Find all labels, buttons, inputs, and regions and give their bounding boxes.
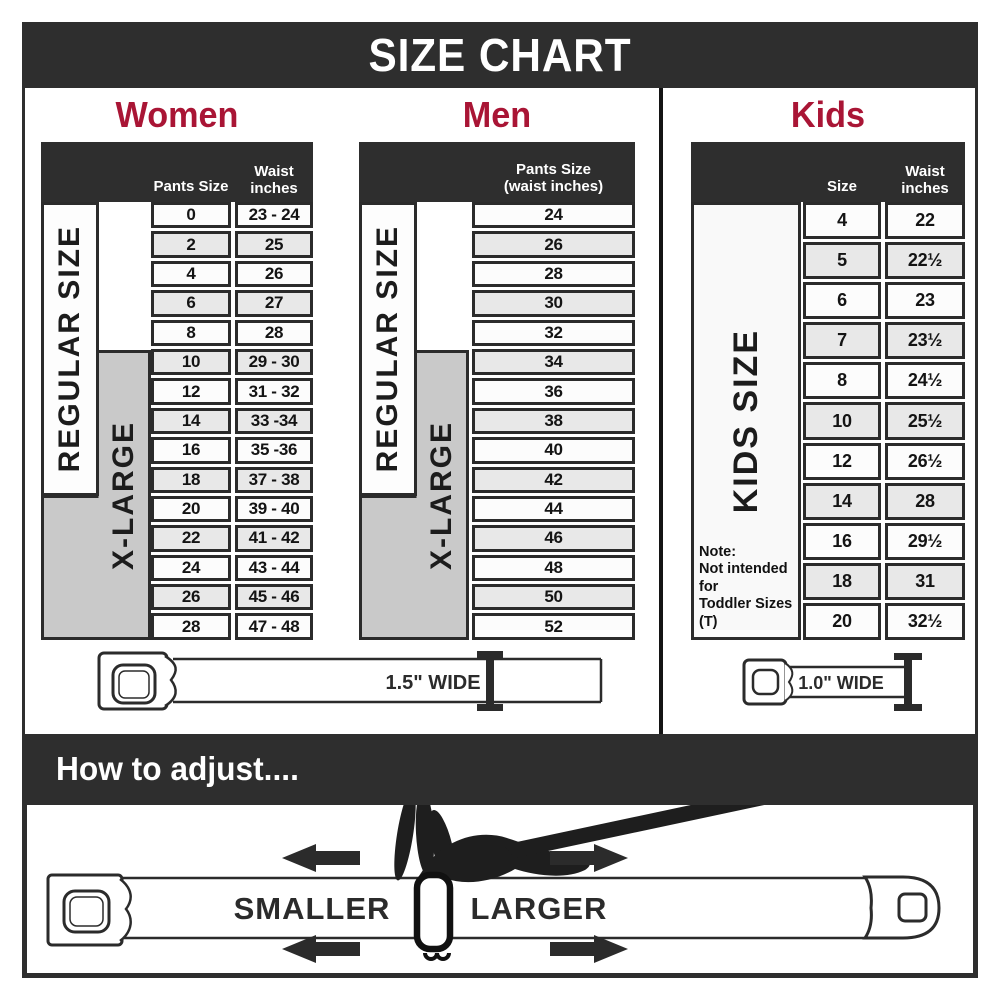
kids-col1-header: Size [803,178,881,195]
kids-size-label: KIDS SIZE [727,329,766,513]
women-col1-header: Pants Size [151,178,231,195]
kids-waist-column: 2222½2323½24½25½26½2829½3132½ [885,202,965,640]
how-to-adjust-heading: How to adjust.... [56,750,299,788]
men-pants-size-cell: 44 [472,496,635,522]
men-col-header: Pants Size (waist inches) [472,161,635,195]
women-heading: Women [48,94,306,136]
women-waist-cell: 41 - 42 [235,525,313,551]
title-bar: SIZE CHART [22,22,978,88]
pulled-strap [503,805,971,858]
men-pants-size-column: 242628303234363840424446485052 [472,202,635,640]
kids-waist-cell: 22 [885,202,965,239]
adult-belt-illustration: 1.5" WIDE [41,646,641,731]
buckle-opening [753,670,778,694]
kids-size-block: KIDS SIZE Note: Not intended for Toddler… [691,202,801,640]
women-waist-cell: 31 - 32 [235,378,313,404]
kids-waist-cell: 32½ [885,603,965,640]
how-to-adjust-bar: How to adjust.... [22,737,978,800]
kids-waist-cell: 23 [885,282,965,319]
women-pants-size-cell: 0 [151,202,231,228]
page-title: SIZE CHART [368,28,631,82]
adult-belt-width-label: 1.5" WIDE [385,672,480,694]
women-pants-size-cell: 22 [151,525,231,551]
kids-col2-header: Waist inches [885,163,965,197]
men-pants-size-cell: 52 [472,613,635,639]
men-size-table: Pants Size (waist inches) REGULAR SIZE X… [359,142,635,640]
men-pants-size-cell: 26 [472,231,635,257]
women-waist-cell: 29 - 30 [235,349,313,375]
women-pants-size-cell: 16 [151,437,231,463]
kids-waist-cell: 23½ [885,322,965,359]
kids-size-column: 45678101214161820 [803,202,881,640]
kids-waist-cell: 28 [885,483,965,520]
men-pants-size-cell: 38 [472,408,635,434]
women-pants-size-cell: 18 [151,467,231,493]
men-pants-size-cell: 42 [472,467,635,493]
belt-slider [417,875,450,959]
women-size-table: Pants Size Waist inches REGULAR SIZE X-L… [41,142,313,640]
belt-tip [865,877,939,938]
kids-size-cell: 12 [803,443,881,480]
kids-size-cell: 5 [803,242,881,279]
women-waist-cell: 23 - 24 [235,202,313,228]
women-pants-size-cell: 24 [151,555,231,581]
panel-divider [659,88,663,734]
kids-size-cell: 7 [803,322,881,359]
kids-waist-cell: 29½ [885,523,965,560]
women-pants-size-cell: 26 [151,584,231,610]
women-pants-size-cell: 14 [151,408,231,434]
hand-icon [390,805,971,887]
kids-waist-cell: 24½ [885,362,965,399]
smaller-label: SMALLER [234,891,391,926]
kids-size-cell: 18 [803,563,881,600]
larger-label: LARGER [471,891,608,926]
men-pants-size-cell: 50 [472,584,635,610]
men-pants-size-cell: 48 [472,555,635,581]
kids-table-header: Size Waist inches [691,142,965,202]
men-pants-size-cell: 28 [472,261,635,287]
women-pants-size-cell: 28 [151,613,231,639]
women-waist-cell: 25 [235,231,313,257]
kids-size-cell: 16 [803,523,881,560]
adjust-illustration: SMALLER LARGER [27,805,973,973]
women-pants-size-cell: 8 [151,320,231,346]
men-pants-size-cell: 40 [472,437,635,463]
men-pants-size-cell: 46 [472,525,635,551]
kids-size-cell: 10 [803,402,881,439]
men-pants-size-cell: 30 [472,290,635,316]
women-col2-header: Waist inches [235,163,313,197]
women-pants-size-cell: 2 [151,231,231,257]
women-pants-size-column: 0246810121416182022242628 [151,202,231,640]
women-pants-size-cell: 10 [151,349,231,375]
women-waist-cell: 45 - 46 [235,584,313,610]
women-waist-cell: 39 - 40 [235,496,313,522]
women-pants-size-cell: 6 [151,290,231,316]
kids-waist-cell: 31 [885,563,965,600]
men-pants-size-cell: 34 [472,349,635,375]
men-pants-size-cell: 24 [472,202,635,228]
kids-size-table: Size Waist inches KIDS SIZE Note: Not in… [691,142,965,640]
men-table-header: Pants Size (waist inches) [359,142,635,202]
kids-size-cell: 4 [803,202,881,239]
kids-note: Note: Not intended for Toddler Sizes (T) [699,544,798,632]
women-waist-cell: 47 - 48 [235,613,313,639]
women-pants-size-cell: 20 [151,496,231,522]
size-tables-panel: Women Men Kids Pants Size Waist inches R… [22,88,978,737]
kids-waist-cell: 26½ [885,443,965,480]
men-heading: Men [366,94,628,136]
kids-waist-cell: 25½ [885,402,965,439]
buckle-clip [785,663,792,701]
women-table-header: Pants Size Waist inches [41,142,313,202]
arrow-left-icon [282,844,360,872]
women-waist-cell: 26 [235,261,313,287]
women-pants-size-cell: 4 [151,261,231,287]
kids-heading: Kids [698,94,958,136]
kids-belt-illustration: 1.0" WIDE [691,646,965,731]
women-waist-cell: 28 [235,320,313,346]
buckle-clip [165,656,176,706]
women-waist-cell: 27 [235,290,313,316]
men-xlarge-label: X-LARGE [425,421,459,570]
women-xlarge-label: X-LARGE [107,421,141,570]
women-waist-cell: 33 -34 [235,408,313,434]
women-waist-cell: 43 - 44 [235,555,313,581]
men-regular-label: REGULAR SIZE [371,225,405,472]
men-pants-size-cell: 32 [472,320,635,346]
women-waist-column: 23 - 242526272829 - 3031 - 3233 -3435 -3… [235,202,313,640]
kids-belt-width-label: 1.0" WIDE [798,673,884,693]
kids-waist-cell: 22½ [885,242,965,279]
kids-size-cell: 8 [803,362,881,399]
women-pants-size-cell: 12 [151,378,231,404]
kids-size-cell: 20 [803,603,881,640]
kids-size-cell: 6 [803,282,881,319]
adjust-illustration-box: SMALLER LARGER [22,800,978,978]
seatbelt-buckle-icon [48,875,131,945]
width-measure-icon [894,653,922,711]
women-waist-cell: 37 - 38 [235,467,313,493]
kids-size-cell: 14 [803,483,881,520]
size-chart-page: SIZE CHART Women Men Kids Pants Size Wai… [0,0,1000,1000]
men-pants-size-cell: 36 [472,378,635,404]
women-waist-cell: 35 -36 [235,437,313,463]
women-regular-label: REGULAR SIZE [53,225,87,472]
